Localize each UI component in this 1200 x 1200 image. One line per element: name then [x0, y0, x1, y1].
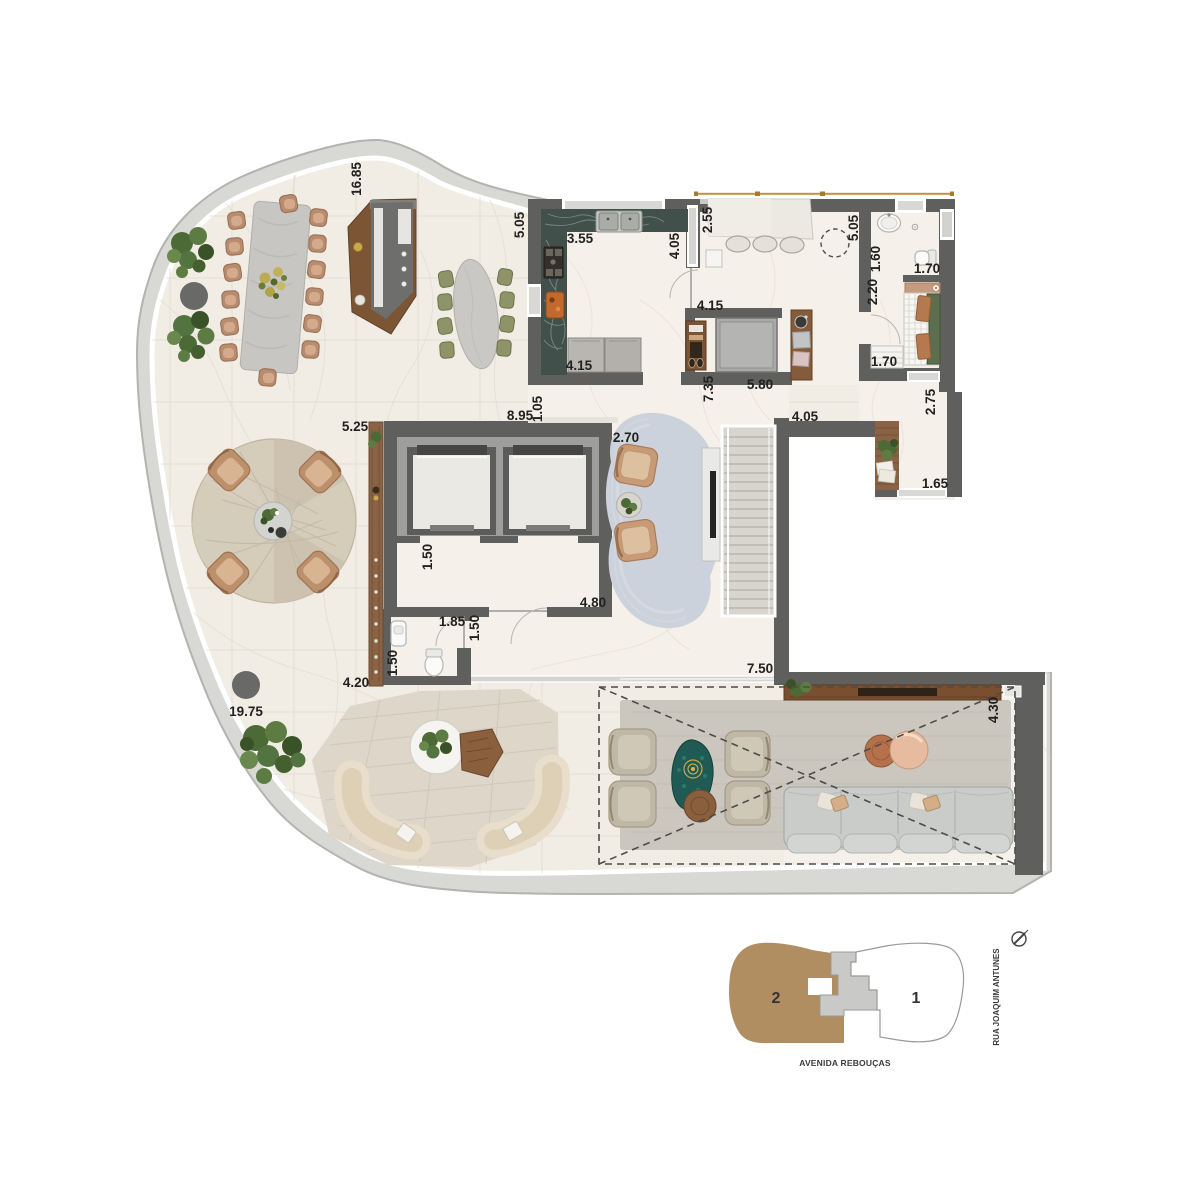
- svg-text:2: 2: [772, 990, 781, 1007]
- svg-text:4.30: 4.30: [986, 697, 1001, 723]
- svg-text:1.70: 1.70: [914, 261, 940, 276]
- svg-text:2.75: 2.75: [923, 388, 938, 415]
- svg-text:3.55: 3.55: [567, 231, 594, 246]
- svg-text:5.80: 5.80: [747, 377, 773, 392]
- svg-text:16.85: 16.85: [349, 162, 364, 196]
- svg-text:1.60: 1.60: [868, 246, 883, 272]
- svg-text:1.85: 1.85: [439, 614, 466, 629]
- svg-text:1.50: 1.50: [385, 650, 400, 676]
- svg-text:4.15: 4.15: [697, 298, 724, 313]
- svg-text:4.20: 4.20: [343, 675, 369, 690]
- svg-text:4.15: 4.15: [566, 358, 593, 373]
- svg-text:1.65: 1.65: [922, 476, 949, 491]
- svg-text:2.20: 2.20: [865, 279, 880, 305]
- svg-text:1: 1: [912, 990, 921, 1007]
- svg-text:4.05: 4.05: [792, 409, 819, 424]
- svg-text:RUA JOAQUIM ANTUNES: RUA JOAQUIM ANTUNES: [992, 948, 1001, 1046]
- svg-text:AVENIDA REBOUÇAS: AVENIDA REBOUÇAS: [799, 1058, 891, 1068]
- svg-text:1.50: 1.50: [467, 615, 482, 641]
- svg-text:2.70: 2.70: [613, 430, 639, 445]
- svg-text:4.80: 4.80: [580, 595, 606, 610]
- svg-text:5.05: 5.05: [512, 211, 527, 238]
- svg-text:7.50: 7.50: [747, 661, 773, 676]
- svg-text:5.05: 5.05: [846, 214, 861, 241]
- svg-text:1.50: 1.50: [420, 544, 435, 570]
- svg-text:5.25: 5.25: [342, 419, 369, 434]
- svg-text:7.35: 7.35: [701, 375, 716, 402]
- svg-text:19.75: 19.75: [229, 704, 263, 719]
- svg-text:1.05: 1.05: [530, 395, 545, 422]
- svg-text:4.05: 4.05: [667, 232, 682, 259]
- svg-text:1.70: 1.70: [871, 354, 897, 369]
- svg-text:2.55: 2.55: [700, 206, 715, 233]
